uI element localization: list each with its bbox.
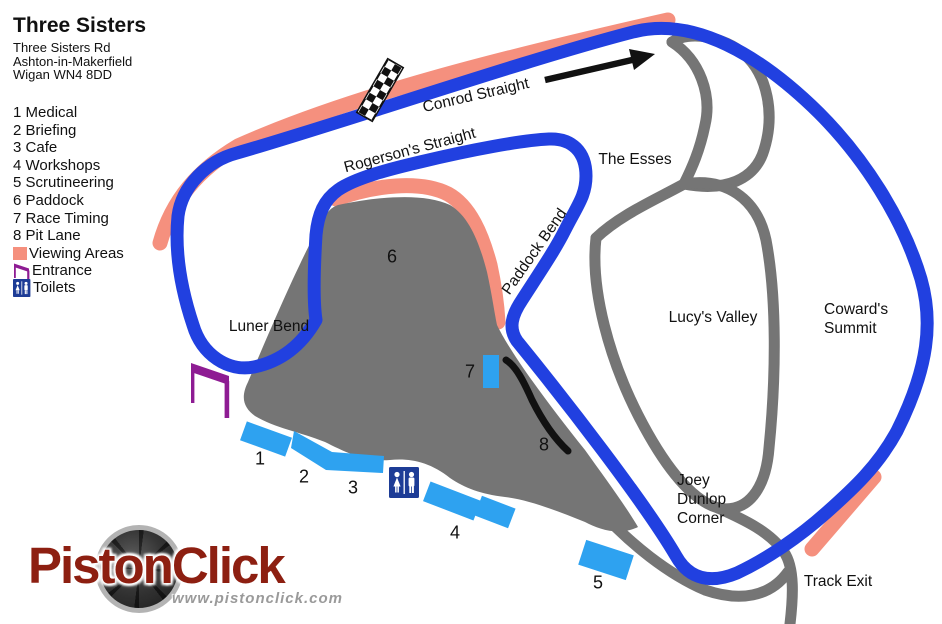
toilets-icon [389, 467, 419, 498]
label-luner-bend: Luner Bend [229, 318, 309, 336]
address-line: Ashton-in-Makerfield [13, 55, 223, 69]
marker-race-timing: 7 [465, 362, 475, 383]
building-race-timing [483, 355, 499, 388]
label-track-exit: Track Exit [804, 573, 872, 591]
marker-paddock: 6 [387, 247, 397, 268]
logo-website-text: www.pistonclick.com [172, 590, 343, 607]
viewing-area-swatch-icon [13, 247, 27, 260]
legend: 1 Medical 2 Briefing 3 Cafe 4 Workshops … [13, 104, 124, 297]
page-title: Three Sisters [13, 14, 223, 38]
legend-item-medical: 1 Medical [13, 104, 124, 122]
legend-item-entrance: Entrance [13, 262, 124, 279]
logo-brand-text: PistonClick [28, 536, 284, 595]
marker-medical: 1 [255, 449, 265, 470]
marker-workshops: 4 [450, 523, 460, 544]
entrance-flag-icon [13, 261, 30, 280]
building-workshops-b [474, 496, 515, 529]
label-lucys-valley: Lucy's Valley [669, 309, 758, 327]
marker-briefing: 2 [299, 467, 309, 488]
legend-item-briefing: 2 Briefing [13, 122, 124, 140]
legend-item-race-timing: 7 Race Timing [13, 210, 124, 228]
label-joey-dunlop-corner: Joey Dunlop Corner [677, 471, 726, 528]
legend-item-workshops: 4 Workshops [13, 157, 124, 175]
label-the-esses: The Esses [598, 151, 671, 169]
address-line: Wigan WN4 8DD [13, 68, 223, 82]
viewing-areas-label: Viewing Areas [29, 245, 124, 263]
inner-track-roads [595, 36, 792, 624]
address-line: Three Sisters Rd [13, 41, 223, 55]
toilets-label: Toilets [33, 279, 76, 297]
legend-item-scrutineering: 5 Scrutineering [13, 174, 124, 192]
legend-item-cafe: 3 Cafe [13, 139, 124, 157]
legend-item-toilets: Toilets [13, 280, 124, 297]
pistonclick-logo: PistonClick www.pistonclick.com [12, 498, 352, 620]
toilets-icon [13, 279, 31, 297]
marker-cafe: 3 [348, 478, 358, 499]
info-panel: Three Sisters Three Sisters Rd Ashton-in… [13, 14, 223, 82]
legend-item-paddock: 6 Paddock [13, 192, 124, 210]
marker-pit-lane: 8 [539, 435, 549, 456]
marker-scrutineering: 5 [593, 573, 603, 594]
legend-item-pit-lane: 8 Pit Lane [13, 227, 124, 245]
entrance-flag-icon [191, 363, 229, 418]
entrance-label: Entrance [32, 262, 92, 280]
circuit-map-page: Three Sisters Three Sisters Rd Ashton-in… [0, 0, 942, 624]
label-cowards-summit: Coward's Summit [824, 300, 888, 338]
building-scrutineering [578, 540, 634, 580]
legend-item-viewing-areas: Viewing Areas [13, 245, 124, 262]
